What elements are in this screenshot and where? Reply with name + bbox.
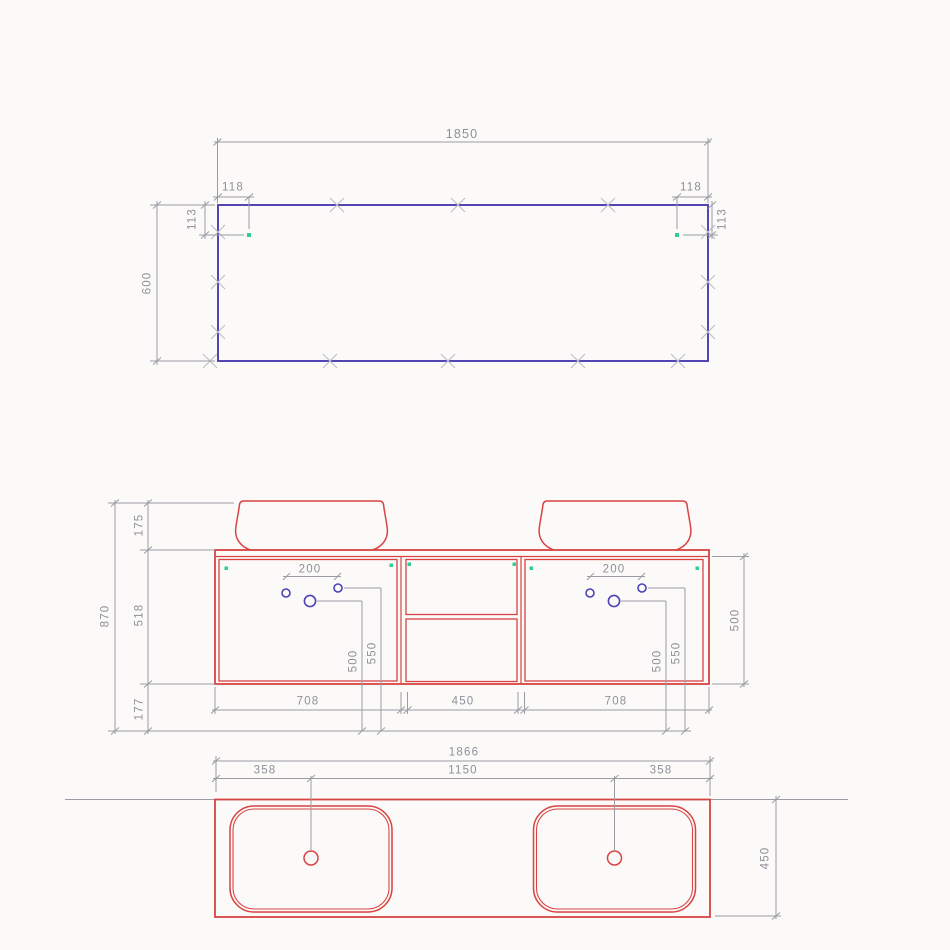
cabinet-outline <box>215 550 709 684</box>
dim-drawer-section-width: 450 <box>452 696 475 708</box>
front-fixing-markers <box>225 563 700 571</box>
dim-hole-spacing-left: 200 <box>299 564 322 576</box>
dim-door-left-width: 708 <box>297 696 320 708</box>
dim-top-height: 600 <box>142 272 154 295</box>
waste-hole-right <box>608 851 622 865</box>
front-basin-right <box>539 501 691 550</box>
fixing-marker-left <box>247 233 251 237</box>
dim-wall-clearance: 177 <box>134 698 146 721</box>
dim-hole-spacing-right: 200 <box>603 564 626 576</box>
dim-hole-down-left: 113 <box>187 208 199 230</box>
hole-right-b <box>608 595 619 606</box>
dim-hole-offset-right: 118 <box>680 182 702 194</box>
plan-basins <box>230 806 696 912</box>
dim-basin-offset-left: 358 <box>254 765 277 777</box>
fixing-point-markers <box>247 233 679 237</box>
tap-hole-circles <box>282 584 646 607</box>
top-view <box>150 138 718 368</box>
dim-hole-down-right: 113 <box>717 208 729 230</box>
dim-basin-offset-right: 358 <box>650 765 673 777</box>
hole-left-b <box>304 595 315 606</box>
dim-hole-height-550-left: 550 <box>367 642 379 665</box>
fixing-marker-right <box>675 233 679 237</box>
countertop-outline <box>215 800 710 918</box>
dim-hole-height-550-right: 550 <box>671 642 683 665</box>
front-view-dimensions <box>108 500 749 735</box>
glass-cross-marks <box>203 198 715 368</box>
hole-left-a <box>282 589 290 597</box>
dim-door-right-width: 708 <box>605 696 628 708</box>
top-view-dimensions <box>150 138 718 365</box>
dim-hole-height-500-left: 500 <box>348 650 360 673</box>
cad-drawing-canvas: 1850 118 118 113 113 600 870 175 518 177… <box>0 0 950 950</box>
hole-right-c <box>638 584 646 592</box>
dim-cabinet-height: 518 <box>134 604 146 627</box>
plan-view <box>65 756 848 920</box>
hole-right-a <box>586 589 594 597</box>
dim-plan-depth: 450 <box>760 847 772 870</box>
front-view <box>108 500 749 735</box>
front-basin-left <box>236 501 388 550</box>
dim-hole-height-500-right: 500 <box>652 650 664 673</box>
waste-hole-left <box>304 851 318 865</box>
dim-basin-spacing: 1150 <box>448 765 478 777</box>
dim-basin-height: 175 <box>134 514 146 537</box>
front-cabinet <box>215 550 709 684</box>
drawer-top-front <box>406 560 517 615</box>
dim-top-width: 1850 <box>446 128 479 141</box>
drawing-linework <box>0 0 950 950</box>
drawer-bottom-front <box>406 619 517 682</box>
front-basins <box>236 501 691 550</box>
dim-plan-total-width: 1866 <box>449 747 479 759</box>
dim-total-height: 870 <box>100 605 112 628</box>
dim-hole-offset-left: 118 <box>222 182 244 194</box>
top-view-panel-outline <box>218 205 708 361</box>
hole-left-c <box>334 584 342 592</box>
dim-carcass-height: 500 <box>730 609 742 632</box>
